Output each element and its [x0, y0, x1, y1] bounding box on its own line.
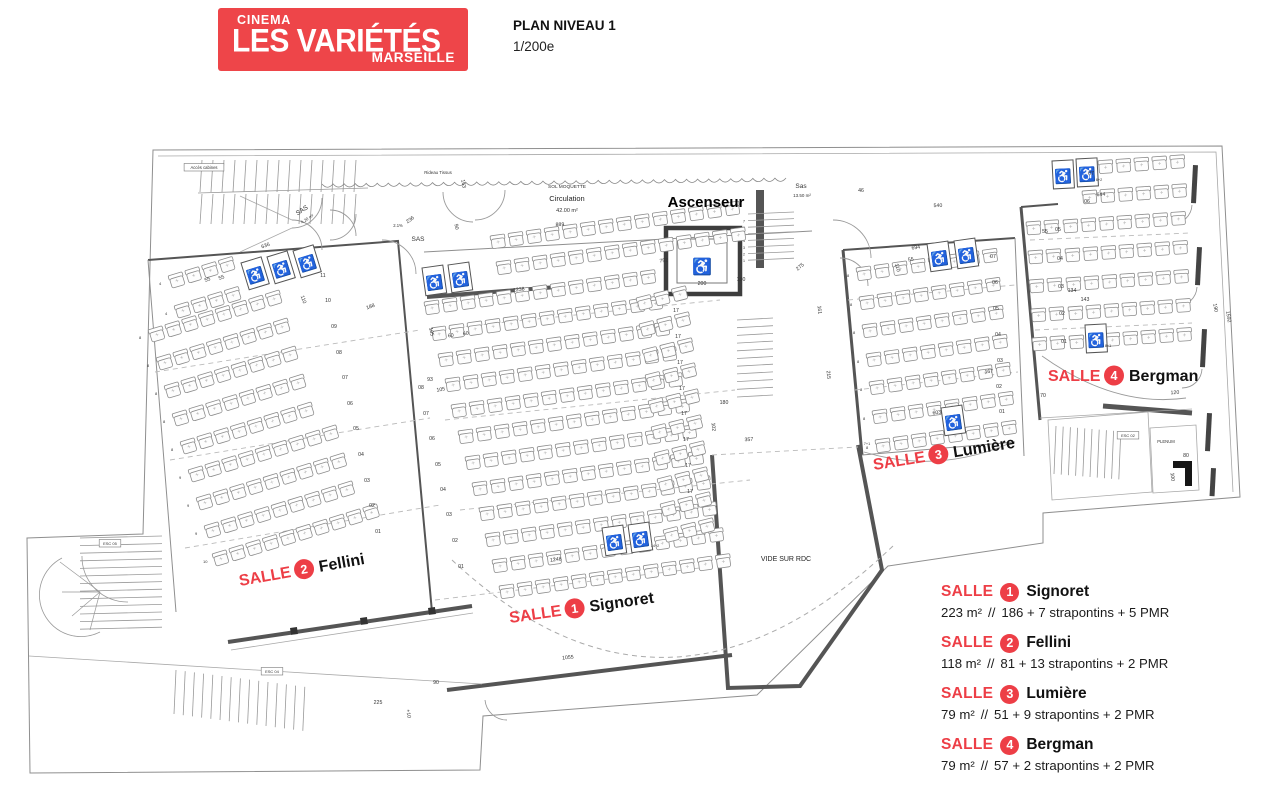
salle-number-badge: 2: [1000, 634, 1019, 653]
seat: [528, 553, 544, 568]
seat: [998, 391, 1014, 406]
seat: [952, 310, 968, 325]
seat-count-label: 8: [857, 359, 860, 364]
seat: [456, 349, 472, 364]
seat: [679, 559, 695, 574]
seat: [575, 519, 591, 534]
seat: [490, 234, 506, 249]
dimension-label: 180: [737, 277, 746, 283]
salle-word: SALLE: [508, 603, 563, 627]
seat: [469, 400, 485, 415]
legend-salle-word: SALLE: [941, 583, 993, 601]
specs-separator: //: [988, 605, 995, 620]
dimension-label: 55: [908, 257, 915, 264]
seat: [532, 285, 548, 300]
seat: [451, 403, 467, 418]
seat: [537, 445, 553, 460]
seat: [586, 277, 602, 292]
seat: [967, 280, 983, 295]
seat: [245, 540, 263, 557]
area-label: Accès cabines: [191, 165, 218, 170]
salle-plan-label: SALLE2Fellini: [237, 549, 366, 591]
dimension-label: 215: [825, 370, 832, 379]
seat: [613, 380, 629, 395]
salle-capacity: 186 + 7 strapontins + 5 PMR: [1001, 605, 1169, 620]
seat: [526, 229, 542, 244]
dimension-label: 105: [427, 327, 434, 337]
seat: [265, 290, 283, 307]
seat: [180, 438, 198, 455]
seat: [487, 398, 503, 413]
seat-row: [866, 334, 1008, 367]
row-number-label: 09: [331, 324, 337, 330]
seat: [643, 564, 659, 579]
row-number-label: 02: [996, 384, 1002, 390]
seat: [911, 433, 927, 448]
seat: [1155, 242, 1170, 256]
seat: [938, 342, 954, 357]
wheelchair-spot: ♿: [422, 265, 447, 296]
row-number-label: 04: [358, 452, 364, 458]
stair-step-number: 1: [743, 259, 745, 263]
dimension-label: 14+2: [651, 544, 660, 548]
seat: [478, 292, 494, 307]
seat: [1101, 245, 1116, 259]
floor-plan-page: CINEMA LES VARIÉTÉS MARSEILLE PLAN NIVEA…: [0, 0, 1280, 812]
seat: [620, 406, 636, 421]
salle-name: Bergman: [1129, 368, 1198, 385]
seat-count-label: 9: [187, 503, 190, 508]
seat: [569, 493, 585, 508]
seat: [305, 430, 323, 447]
seat: [519, 447, 535, 462]
wheelchair-spot: ♿: [241, 257, 269, 290]
dimension-label: 102: [710, 422, 717, 431]
dimension-label: 188: [366, 303, 376, 312]
seat: [551, 496, 567, 511]
row-number-label: 01: [458, 564, 464, 570]
dimension-label: 180: [720, 400, 729, 406]
seat: [923, 372, 939, 387]
seat: [902, 347, 918, 362]
seat: [905, 375, 921, 390]
seat-count-label: 8: [155, 391, 158, 396]
seat: [515, 501, 531, 516]
seat: [1120, 273, 1135, 287]
dimension-label: 644: [1096, 192, 1105, 198]
seat-count-label: 4: [159, 281, 162, 286]
seat: [213, 489, 231, 506]
dimension-label: 357: [744, 437, 753, 443]
seat: [181, 316, 199, 333]
dimension-label: 90: [433, 680, 439, 686]
seat: [553, 362, 569, 377]
seat: [584, 411, 600, 426]
seat: [634, 214, 650, 229]
row-number-label: 04: [995, 332, 1001, 338]
wheelchair-spot: ♿: [1085, 324, 1107, 353]
seat: [622, 272, 638, 287]
row-number-label: 05: [435, 462, 441, 468]
seat: [521, 313, 537, 328]
seat: [934, 313, 950, 328]
seat-count-label: 8: [860, 387, 863, 392]
seat: [329, 514, 347, 531]
row-number-label: 01: [1061, 339, 1067, 345]
seat: [577, 385, 593, 400]
dimension-label: 236: [405, 215, 416, 225]
seat: [573, 440, 589, 455]
seat: [1174, 269, 1189, 283]
seat: [517, 367, 533, 382]
stair: [200, 194, 356, 224]
seat: [197, 433, 215, 450]
dimension-label: 603: [932, 409, 942, 416]
seat: [173, 349, 191, 366]
seat: [289, 374, 307, 391]
seat: [346, 509, 364, 526]
seat: [929, 430, 945, 445]
seat: [580, 221, 596, 236]
seat: [564, 548, 580, 563]
seat: [1117, 215, 1132, 229]
seat: [600, 329, 616, 344]
seat: [983, 423, 999, 438]
seat: [218, 256, 236, 273]
dimension-label: 225: [374, 700, 383, 706]
wheelchair-spot: ♿: [602, 525, 627, 556]
seat: [557, 522, 573, 537]
seat: [288, 496, 306, 513]
seat: [256, 323, 274, 340]
seat: [568, 280, 584, 295]
seat: [869, 380, 885, 395]
seat: [593, 303, 609, 318]
row-number-label: 08: [336, 350, 342, 356]
seat: [510, 555, 526, 570]
seat: [1099, 216, 1114, 230]
seat: [262, 534, 280, 551]
seat: [875, 438, 891, 453]
seat: [1001, 420, 1017, 435]
seat: [237, 512, 255, 529]
seat: [338, 481, 356, 498]
salle-word: SALLE: [1048, 368, 1101, 385]
seat: [1153, 213, 1168, 227]
salle-name: Fellini: [1026, 634, 1071, 652]
seat: [474, 347, 490, 362]
seat: [652, 211, 668, 226]
salle-name: Fellini: [318, 551, 366, 576]
seat: [920, 344, 936, 359]
seat: [263, 473, 281, 490]
seat: [564, 334, 580, 349]
seat: [533, 498, 549, 513]
legend-entry-lumiere: SALLE 3 Lumière 79 m²//51 + 9 strapontin…: [941, 684, 1271, 722]
row-number-label: 07: [342, 375, 348, 381]
row-number-label: 04: [1057, 256, 1063, 262]
row-number-label: 06: [1084, 199, 1090, 205]
row-number-label: 05: [993, 306, 999, 312]
dimension-label: 889: [556, 222, 565, 228]
seat: [248, 295, 266, 312]
wheelchair-spot: ♿: [293, 245, 321, 278]
seat: [995, 362, 1011, 377]
seat-row: [869, 362, 1011, 395]
seat: [916, 315, 932, 330]
seat: [559, 388, 575, 403]
seat: [1084, 276, 1099, 290]
area-label: ESC 05: [103, 541, 118, 546]
wall-segment: [756, 190, 764, 268]
seat: [230, 422, 248, 439]
seat: [680, 363, 697, 379]
seat: [587, 491, 603, 506]
seat: [622, 242, 638, 257]
row-number-label: 17: [673, 308, 679, 314]
seat: [582, 545, 598, 560]
salle-plan-label: SALLE4Bergman: [1048, 366, 1198, 386]
seat: [880, 320, 896, 335]
seat: [246, 478, 264, 495]
dimension-label: 90: [453, 223, 460, 230]
seat: [223, 333, 241, 350]
seat: [913, 287, 929, 302]
seat: [550, 252, 566, 267]
dimension-label: 1055: [562, 654, 574, 661]
salle-area: 118 m²: [941, 656, 981, 671]
seat-row: [663, 518, 716, 543]
salle-number: 4: [1111, 369, 1118, 383]
seat: [980, 394, 996, 409]
seat: [609, 435, 625, 450]
seat: [1032, 337, 1047, 351]
seat: [485, 318, 501, 333]
seat: [492, 344, 508, 359]
seat: [189, 344, 207, 361]
row-number-label: 01: [375, 529, 381, 535]
seat: [1176, 298, 1191, 312]
seat: [442, 297, 458, 312]
seat: [1116, 158, 1131, 172]
seat: [602, 409, 618, 424]
salle-capacity: 57 + 2 strapontins + 2 PMR: [994, 758, 1155, 773]
seat: [694, 232, 710, 247]
area-label: SOL MOQUETTE: [548, 184, 586, 190]
dimension-label: 163: [459, 179, 466, 189]
legend-salle-word: SALLE: [941, 634, 993, 652]
seat: [1152, 156, 1167, 170]
seat: [168, 272, 186, 289]
salle-area: 79 m²: [941, 707, 975, 722]
seat: [505, 395, 521, 410]
dimension-label: 93: [427, 377, 433, 383]
seat: [512, 421, 528, 436]
seat: [730, 227, 746, 242]
seat: [463, 374, 479, 389]
seat: [213, 428, 231, 445]
dimension-label: 8+1: [1105, 344, 1111, 348]
seat: [304, 491, 322, 508]
dimension-label: 60: [463, 331, 470, 338]
row-number-label: 07: [423, 411, 429, 417]
seat: [962, 396, 978, 411]
seat: [156, 354, 174, 371]
seat: [884, 349, 900, 364]
seat: [647, 509, 663, 524]
seat-count-label: 8: [171, 447, 174, 452]
dimension-label: 6+2: [1096, 178, 1102, 182]
seat: [550, 282, 566, 297]
seat: [321, 486, 339, 503]
seat-count-label: 4: [165, 311, 168, 316]
row-number-label: 03: [1058, 284, 1064, 290]
seat: [604, 245, 620, 260]
legend-salle-word: SALLE: [941, 736, 993, 754]
seat: [165, 321, 183, 338]
row-number-label: 17: [677, 360, 683, 366]
dimension-label: 110: [299, 295, 308, 305]
dimension-label: 70: [1040, 393, 1046, 399]
seat: [185, 267, 203, 284]
row-number-label: 05: [353, 426, 359, 432]
seat: [697, 556, 713, 571]
seat: [595, 383, 611, 398]
seat: [460, 295, 476, 310]
salle-specs: 118 m²//81 + 13 strapontins + 2 PMR: [941, 656, 1271, 671]
seat: [562, 224, 578, 239]
seat: [1170, 155, 1185, 169]
seat: [231, 361, 249, 378]
dimension-label: 190: [1211, 303, 1218, 313]
seat: [221, 517, 239, 534]
seat-count-label: 8: [863, 416, 866, 421]
seat: [1134, 157, 1149, 171]
seat: [517, 581, 533, 596]
dimension-label: 7+1: [864, 442, 870, 446]
seat: [197, 372, 215, 389]
seat: [256, 384, 274, 401]
seat: [188, 466, 206, 483]
area-label: Sas: [795, 183, 807, 190]
seat: [586, 247, 602, 262]
area-label: Ascenseur: [668, 194, 745, 211]
row-number-label: 17: [679, 386, 685, 392]
seat: [330, 453, 348, 470]
seat: [589, 357, 605, 372]
seat: [148, 326, 166, 343]
row-number-label: 06: [347, 401, 353, 407]
wheelchair-spot: ♿: [941, 405, 966, 436]
seat: [956, 339, 972, 354]
seat: [526, 473, 542, 488]
seat: [521, 527, 537, 542]
seat: [201, 262, 219, 279]
stair: [748, 212, 794, 260]
seat: [607, 354, 623, 369]
seat: [273, 318, 291, 335]
seat: [616, 461, 632, 476]
seat: [312, 519, 330, 536]
seat: [598, 219, 614, 234]
stair: [80, 536, 162, 629]
seat: [255, 445, 273, 462]
seat: [1159, 329, 1174, 343]
dimension-label: 100: [1169, 472, 1176, 481]
seat: [1173, 240, 1188, 254]
seat: [508, 476, 524, 491]
seat: [239, 389, 257, 406]
seat: [908, 404, 924, 419]
seat: [677, 338, 694, 354]
specs-separator: //: [981, 707, 988, 722]
row-number-label: 11: [320, 273, 325, 279]
seat: [174, 302, 192, 319]
row-number-label: 05: [1055, 227, 1061, 233]
seat: [514, 257, 530, 272]
seat: [238, 450, 256, 467]
dimension-label: 60: [448, 333, 455, 340]
salle-name: Signoret: [1026, 583, 1089, 601]
salle-number-badge: 4: [1000, 736, 1019, 755]
seat: [712, 230, 728, 245]
seat: [974, 337, 990, 352]
seat-row: [648, 389, 701, 414]
seat: [214, 366, 232, 383]
seat: [264, 412, 282, 429]
seat-row: [859, 277, 1001, 310]
seat: [530, 419, 546, 434]
seat: [476, 426, 492, 441]
seat: [625, 352, 641, 367]
wheelchair-spot: ♿: [927, 241, 952, 272]
seat: [232, 300, 250, 317]
seat: [1172, 184, 1187, 198]
wheelchair-icon: ♿: [1054, 168, 1072, 186]
seat: [497, 503, 513, 518]
row-number-label: 07: [1088, 171, 1094, 177]
plenum-duct: [1173, 461, 1192, 486]
dimension-label: 167: [984, 369, 993, 376]
seat: [658, 237, 674, 252]
seat: [715, 554, 731, 569]
seat: [503, 529, 519, 544]
elevator-wheelchair-icon: ♿: [692, 257, 712, 276]
salle-capacity: 51 + 9 strapontins + 2 PMR: [994, 707, 1155, 722]
seat: [496, 290, 512, 305]
seat: [893, 435, 909, 450]
row-number-label: 17: [687, 489, 693, 495]
seat: [424, 300, 440, 315]
row-number-label: 03: [446, 512, 452, 518]
salle-area: 223 m²: [941, 605, 982, 620]
seat: [445, 377, 461, 392]
seat: [544, 471, 560, 486]
seat: [872, 409, 888, 424]
seat: [1156, 271, 1171, 285]
legend-entry-bergman: SALLE 4 Bergman 79 m²//57 + 2 strapontin…: [941, 735, 1271, 773]
seat: [280, 407, 298, 424]
seat: [640, 240, 656, 255]
seat: [207, 292, 225, 309]
seat: [485, 532, 501, 547]
area-label: 42.00 m²: [556, 208, 578, 214]
seat: [467, 321, 483, 336]
row-number-label: 03: [364, 478, 370, 484]
seat-count-label: 10: [203, 559, 208, 564]
seat: [224, 286, 242, 303]
stair-step-number: 2: [743, 252, 745, 256]
